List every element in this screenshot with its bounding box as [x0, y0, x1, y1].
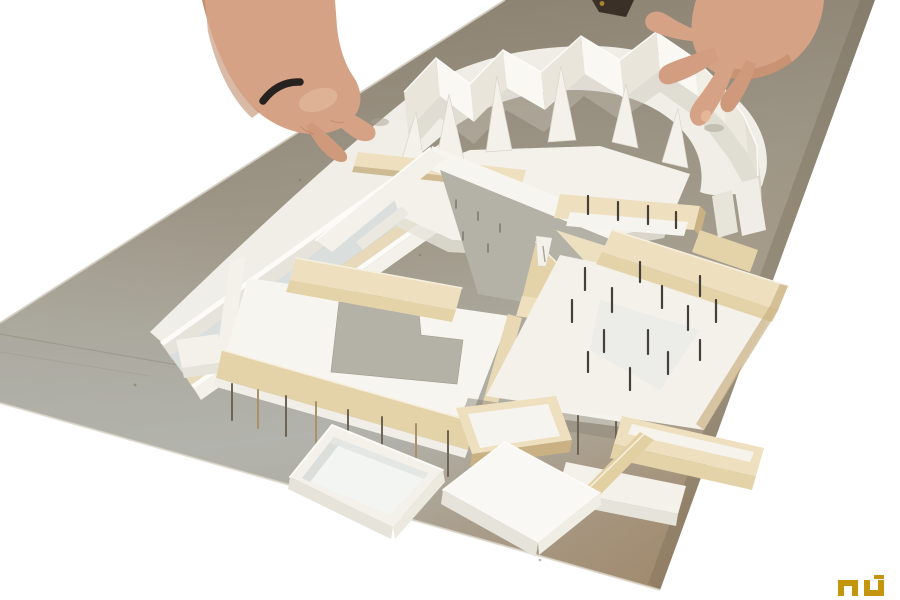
glint: [600, 1, 605, 6]
right-finger-contact-shadow: [704, 124, 724, 132]
architectural-model-photo: [0, 0, 900, 600]
west-ledge: [176, 334, 224, 368]
left-finger-contact-shadow: [371, 118, 389, 126]
